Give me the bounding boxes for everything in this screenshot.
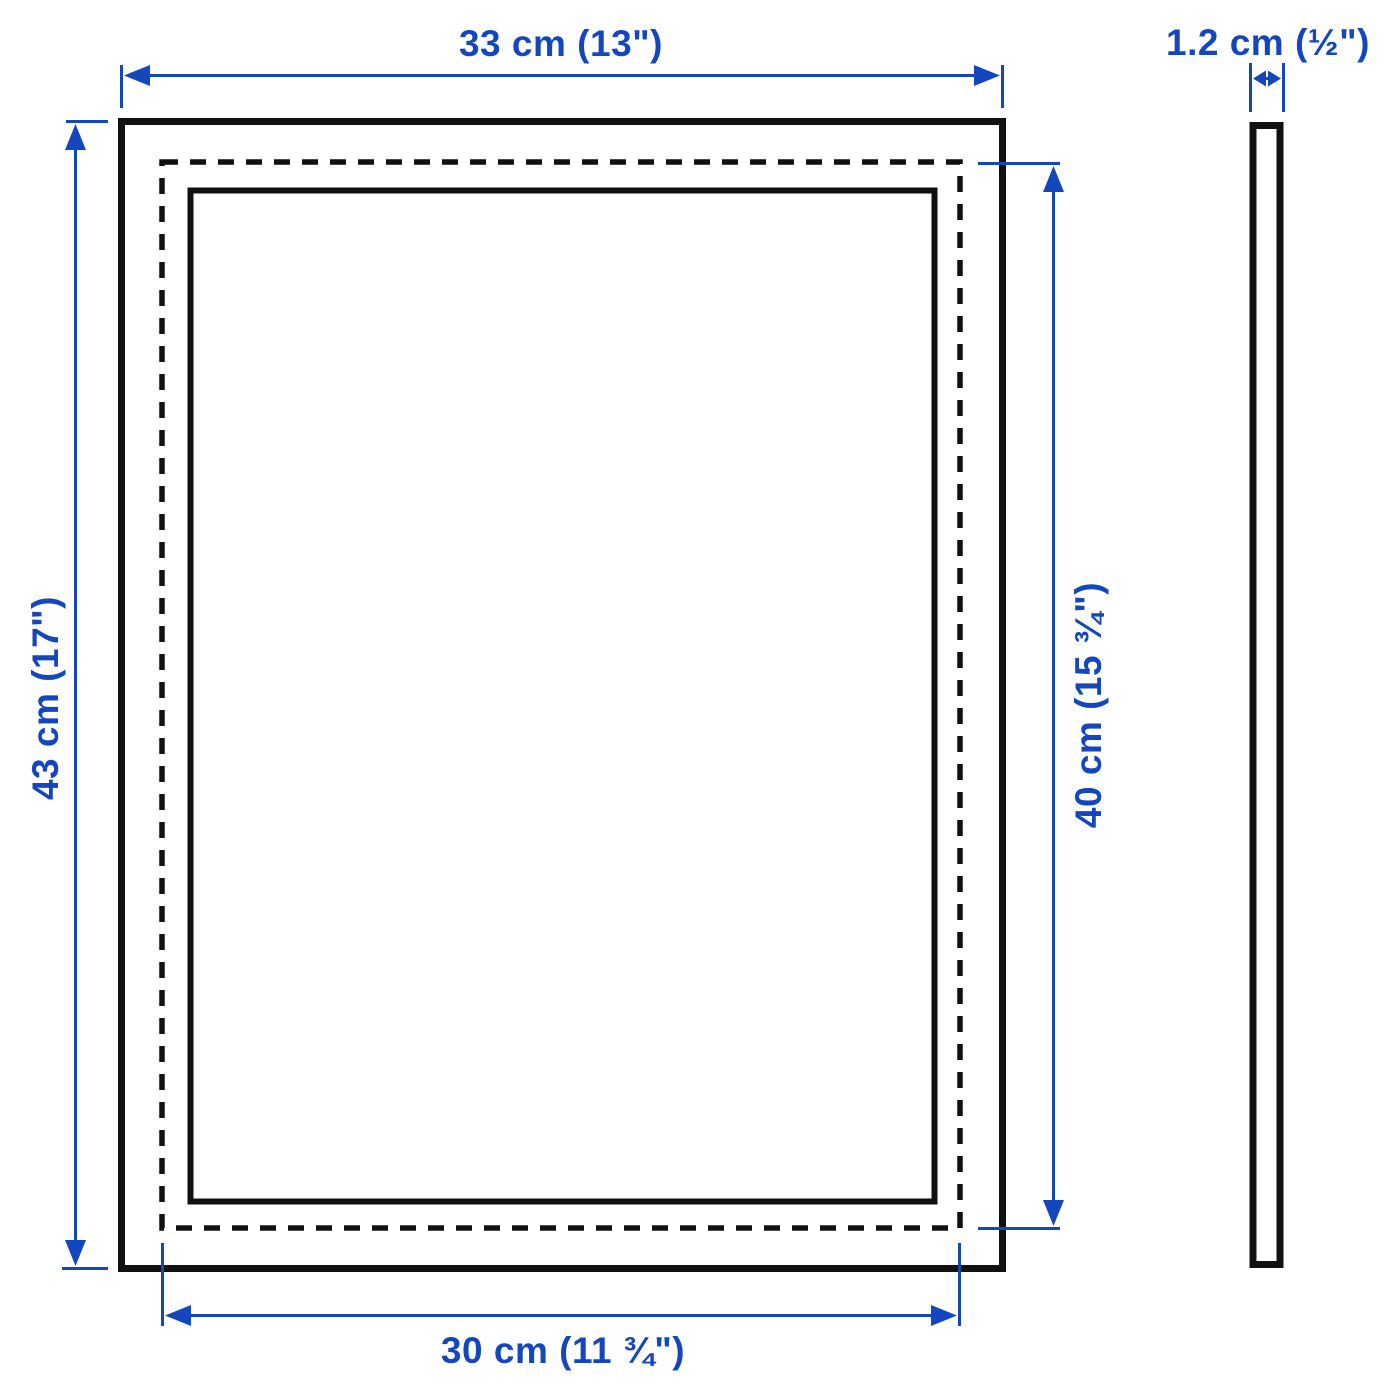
arrow-down-icon [1043,1200,1064,1226]
dimension-frame-width [122,65,1003,108]
picture-size-dashed-outline [162,162,960,1228]
side-view [1253,126,1280,1265]
dimension-label-picture-height: 40 cm (15 ¾") [1068,582,1110,828]
arrow-up-icon [1043,166,1064,192]
arrow-right-icon [1268,71,1281,87]
arrow-right-icon [931,1305,957,1326]
dimension-picture-height [978,164,1064,1229]
dimension-frame-height [62,122,108,1269]
frame-inner-opening-edge [191,191,935,1202]
frame-side-profile [1253,126,1280,1265]
dimension-label-frame-height: 43 cm (17") [25,596,67,800]
arrow-up-icon [65,124,86,150]
dimension-depth [1251,63,1284,112]
dimension-label-picture-width: 30 cm (11 ¾") [441,1330,685,1372]
arrow-right-icon [974,65,1000,86]
front-view [122,122,1003,1269]
arrow-left-icon [165,1305,191,1326]
arrow-left-icon [124,65,150,86]
dimension-label-depth: 1.2 cm (½") [1166,22,1370,64]
dimension-diagram: 33 cm (13") 1.2 cm (½") 43 cm (17") 40 c… [0,0,1400,1400]
dimension-picture-width [163,1243,960,1326]
arrow-down-icon [65,1240,86,1266]
dimension-label-frame-width: 33 cm (13") [459,23,663,65]
diagram-drawing [0,0,1400,1400]
arrow-left-icon [1253,71,1266,87]
frame-outer-edge [122,122,1003,1269]
